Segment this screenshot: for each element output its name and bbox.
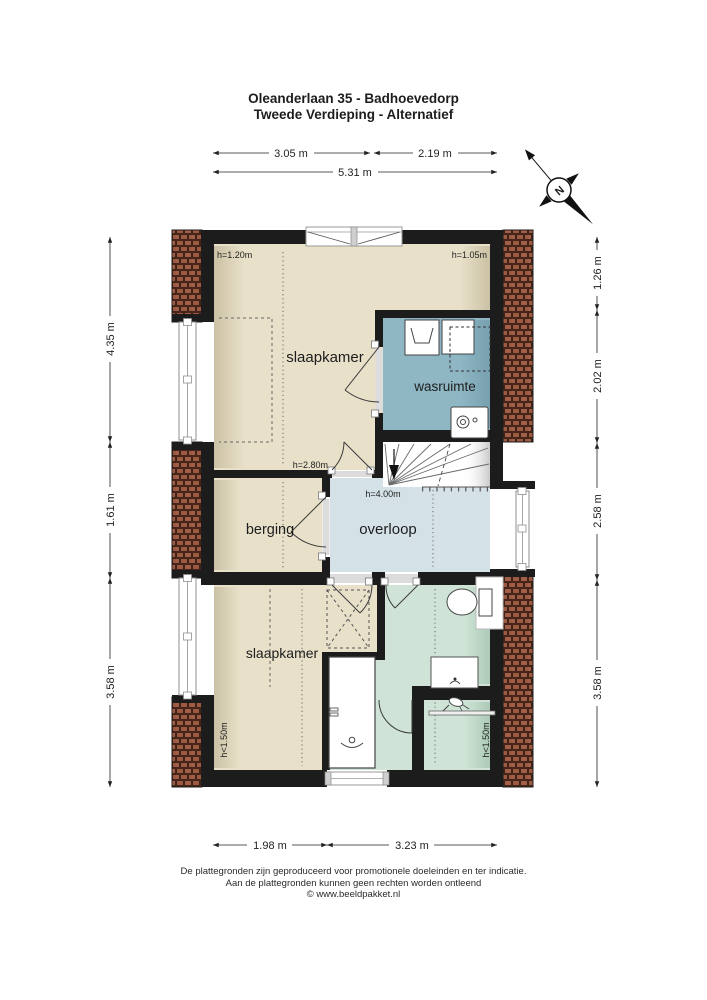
wall-berging-north	[201, 470, 332, 478]
laundry-sink-icon	[405, 320, 439, 355]
wall-bottom-left	[201, 770, 327, 787]
height-label-overloop: h=4.00m	[365, 489, 400, 499]
disclaimer: De plattegronden zijn geproduceerd voor …	[0, 866, 707, 901]
floorplan-drawing: slaapkamer wasruimte berging overloop sl…	[0, 0, 707, 1000]
dim-top-1: 3.05 m	[274, 148, 308, 160]
window-left-top	[179, 319, 196, 445]
label-slaapkamer-top: slaapkamer	[286, 349, 364, 366]
wall-top-right	[400, 230, 503, 244]
disclaimer-line1: De plattegronden zijn geproduceerd voor …	[0, 866, 707, 878]
wall-overloop-south-left	[201, 572, 330, 585]
label-berging: berging	[246, 522, 294, 538]
vanity-sink-icon	[431, 657, 478, 688]
window-bottom	[325, 772, 389, 785]
wall-bottom-right	[387, 770, 503, 787]
height-label-top-right: h=1.05m	[452, 250, 487, 260]
window-left-bottom	[179, 575, 196, 700]
dim-left-1: 4.35 m	[105, 322, 117, 356]
height-label-bottom-left: h<1.50m	[219, 722, 229, 757]
dim-bottom-1: 1.98 m	[253, 840, 287, 852]
roof-tiles-left-bottom	[172, 697, 202, 787]
label-slaapkamer-bottom: slaapkamer	[246, 645, 319, 661]
roof-tiles-right-top	[503, 230, 533, 442]
floorplan-page: Oleanderlaan 35 - Badhoevedorp Tweede Ve…	[0, 0, 707, 1000]
compass-rose: N	[505, 133, 610, 244]
dim-right-4: 3.58 m	[592, 666, 604, 700]
dim-left-3: 3.58 m	[105, 665, 117, 699]
dim-right-3: 2.58 m	[592, 494, 604, 528]
dim-top-total: 5.31 m	[338, 167, 372, 179]
roof-tiles-left-top	[172, 230, 202, 322]
bathtub-icon	[329, 657, 375, 768]
dim-top-2: 2.19 m	[418, 148, 452, 160]
wall-top-left	[201, 230, 308, 244]
label-wasruimte: wasruimte	[413, 379, 476, 394]
dim-right-1: 1.26 m	[592, 256, 604, 290]
wall-wasruimte-north	[375, 310, 503, 318]
disclaimer-line2: Aan de plattegronden kunnen geen rechten…	[0, 878, 707, 890]
dryer-boiler-icon	[451, 407, 488, 438]
dim-bottom-2: 3.23 m	[395, 840, 429, 852]
label-overloop: overloop	[359, 521, 417, 538]
window-right-overloop	[516, 488, 529, 571]
dormer-window-top	[306, 227, 402, 246]
dim-left-2: 1.61 m	[105, 493, 117, 527]
disclaimer-line3: © www.beeldpakket.nl	[0, 889, 707, 901]
dim-right-2: 2.02 m	[592, 359, 604, 393]
height-label-bottom-right: h<1.50m	[481, 722, 491, 757]
roof-tiles-left-middle	[172, 442, 202, 578]
roof-tiles-right-bottom	[503, 575, 533, 787]
height-label-door: h=2.80m	[293, 460, 328, 470]
height-label-top-left: h=1.20m	[217, 250, 252, 260]
